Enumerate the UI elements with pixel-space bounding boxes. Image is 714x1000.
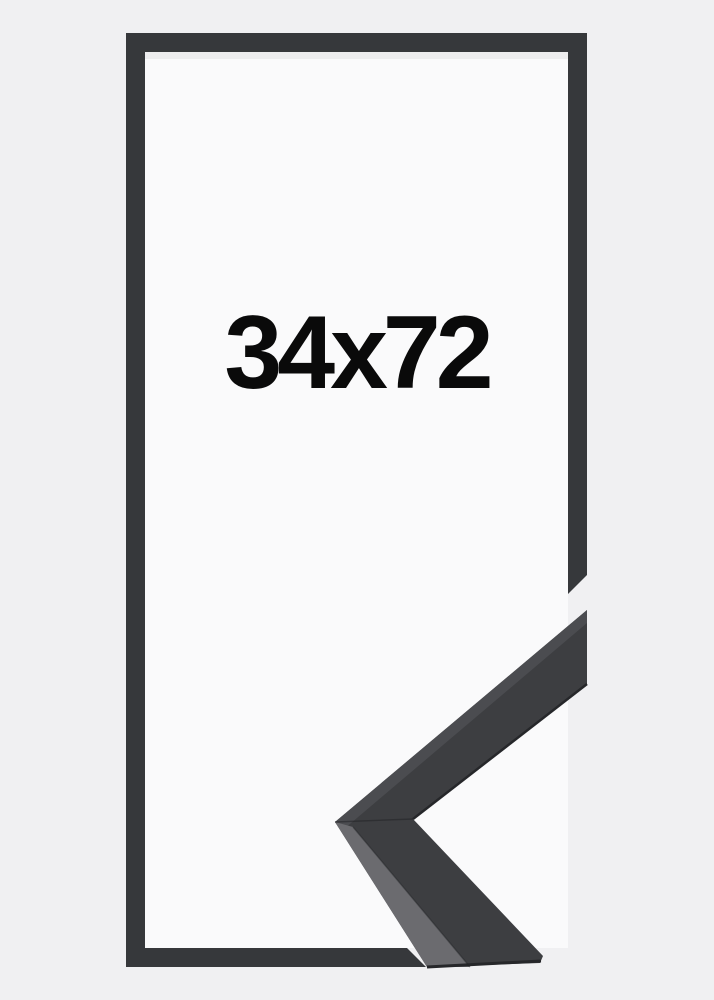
- frame-product-image: 34x72: [0, 0, 714, 1000]
- frame-illustration: [0, 0, 714, 1000]
- frame-size-label: 34x72: [145, 301, 568, 405]
- frame-inner-shadow: [145, 52, 568, 59]
